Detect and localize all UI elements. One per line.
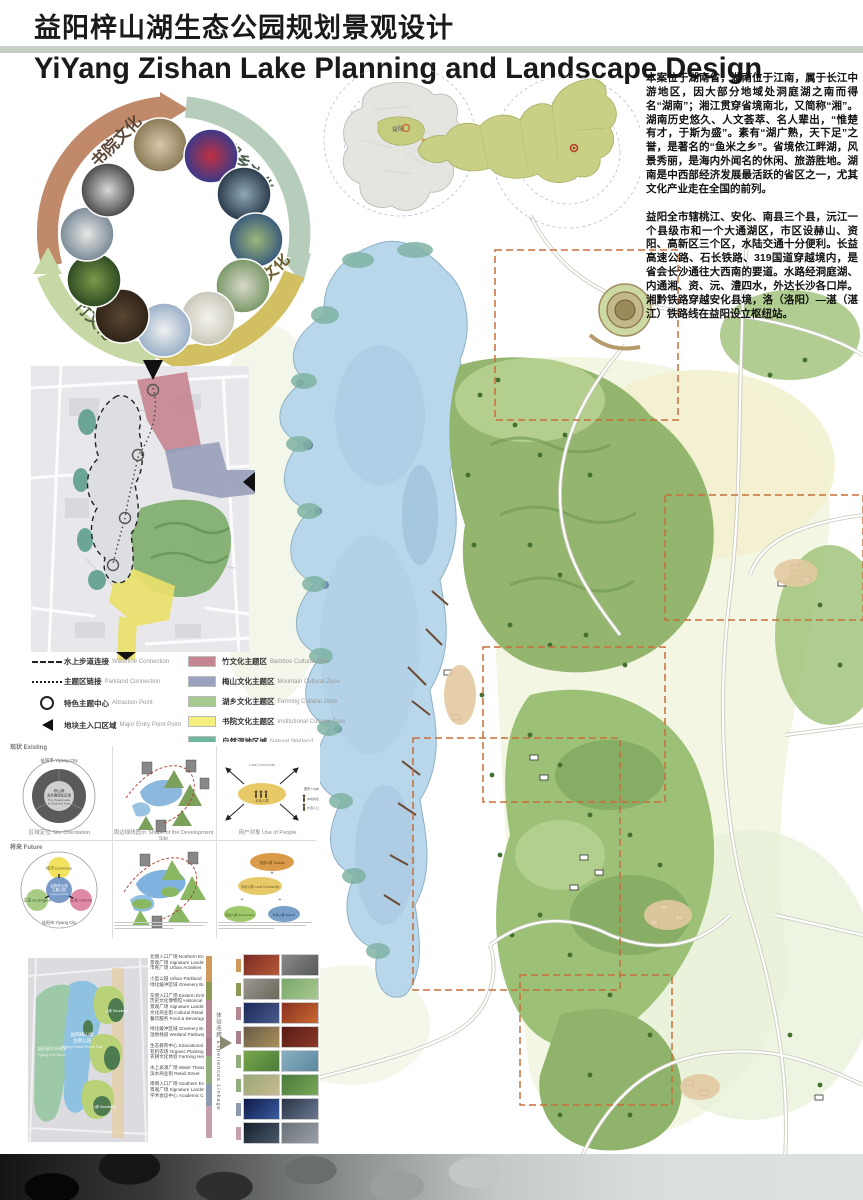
location-maps: 益阳 ★ 长沙 (322, 70, 640, 232)
ref-photo (281, 1002, 319, 1024)
diagram-future-venn: 经济 Economy 生态 Ecological 文化 Culture 益阳梓山… (8, 848, 111, 936)
local-label: 本地人群 Local Community (241, 884, 280, 889)
analysis-panels: 现状 Existing 将来 Future 益阳市 Yiyang City 梓山… (8, 742, 320, 944)
center-label: 及外围绿化区域 (47, 793, 71, 798)
legend-label: 特色主题中心 (64, 698, 109, 709)
outer-label: 益阳市 Yiyang City (40, 757, 78, 764)
legend-label-en: Parkland Connection (105, 679, 161, 685)
programme-list: 北侧入口广场 Northern Entry place 景观广场 Signatu… (150, 954, 204, 1104)
local-community-label: 本地人群 (255, 798, 269, 803)
tourists-label: 旅游人群 Tourists (260, 860, 285, 865)
photo-pagoda (133, 118, 187, 172)
visitors-label: 外来人群 Visitors (273, 912, 296, 917)
legend-item: 本地常住 Local (307, 796, 319, 801)
programme-item: 学术会议中心 Academic Conference Center (150, 1093, 204, 1099)
legend-label: 书院文化主题区 (222, 716, 275, 727)
photo-portrait (81, 163, 135, 217)
photo-water-village (217, 167, 271, 221)
programme-item: 水上表演广场 Water Theatres (150, 1065, 204, 1071)
programme-group-east: 东侧入口广场 Eastern Entry Place 历史文化博物馆 Histo… (150, 993, 204, 1022)
center-label-en: & Greenery Area (48, 802, 71, 806)
programme-group-farming: 生态教育中心 Educational Center 有机农场 Organic P… (150, 1043, 204, 1060)
legend-label-en: Farming Cultural Zone (278, 699, 338, 705)
legend-label-en: Waterline Connection (112, 659, 169, 665)
intro-paragraph-2: 益阳全市辖桃江、安化、南县三个县，沅江一个县级市和一个大通湖区，市区设赫山、资阳… (646, 211, 858, 322)
ref-photo (243, 1074, 281, 1096)
mini-map-park-label: 主题公园 (73, 1037, 92, 1044)
legend-label: 水上步道连接 (64, 656, 109, 667)
reference-photo-grid (236, 954, 320, 1146)
mini-map-park-label: 益阳梓山湖 (71, 1031, 94, 1038)
programme-item: 绿化缓冲区域 Greenery Buffer Zone (150, 982, 204, 988)
culture-ring-diagram: 书院文化 湖乡文化 梅山文化 竹文化 (26, 84, 318, 372)
mountain-zone-swatch (188, 676, 216, 687)
legend-label-en: Mountain Cultural Zone (278, 679, 340, 685)
legend-item-waterline: 水上步道连接 Waterline Connection (30, 656, 180, 667)
ref-photo (243, 1050, 281, 1072)
dashed-line-icon (30, 661, 64, 663)
ref-photo (281, 1074, 319, 1096)
photo-bamboo (67, 253, 121, 307)
programme-item: 滨水商业街 Retail Street (150, 1071, 204, 1077)
legend-zones-column: 竹文化主题区 Bamboo Cultural Zone 梅山文化主题区 Moun… (188, 656, 328, 756)
farming-zone-swatch (188, 696, 216, 707)
zoning-diagram (25, 358, 255, 660)
programme-item: 餐饮服务 Food & Beverage (150, 1016, 204, 1022)
legend-zone-farming: 湖乡文化主题区 Farming Cultural Zone (188, 696, 328, 707)
linkage-label: 体验连廊 Experiences Linkage (214, 1012, 222, 1111)
legend-label-en: Bamboo Cultural Zone (270, 659, 330, 665)
ref-photo (281, 1098, 319, 1120)
legend-markers-column: 水上步道连接 Waterline Connection 主题区链接 Parkla… (30, 656, 180, 740)
ref-photo (243, 1026, 281, 1048)
legend-label: 地块主入口区域 (64, 720, 117, 731)
svg-text:+: + (279, 897, 282, 903)
programme-group-wetland: 绿化缓冲区域 Greenery Buffer Zone 湿地栈道 Wetland… (150, 1026, 204, 1037)
ref-photo (243, 978, 281, 1000)
marker-yiyang-label: 益阳 (392, 125, 404, 133)
legend-item-attraction: 特色主题中心 Attraction Point (30, 696, 180, 710)
legend-label: 梅山文化主题区 (222, 676, 275, 687)
legend-title: 图例 Legend (304, 786, 319, 791)
ref-photo (281, 954, 319, 976)
mini-map-golf-label-en: Yiyang Golf Course (38, 1053, 66, 1057)
programme-item: 市民广场 Urban Activities (150, 965, 204, 971)
ref-photo (243, 1002, 281, 1024)
ref-photo (243, 1098, 281, 1120)
landuse-mini-map: 益阳梓山湖 主题公园 Yiyang Central Theme Park 益阳高… (28, 958, 148, 1142)
caption-use-of-people: 用户对象 Use of People (216, 828, 319, 836)
caption-site-orientation: 区域定位 Site Orientation (8, 828, 111, 836)
programme-item: 农耕文化体验 Farming Heritage (150, 1054, 204, 1060)
poster-page: 益阳梓山湖生态公园规划景观设计 YiYang Zishan Lake Plann… (0, 0, 863, 1200)
mini-map-mountain-label: 山体 Mountains (92, 1104, 116, 1109)
programme-item: 文化商业街 Cultural Retail Street (150, 1010, 204, 1016)
legend-label-en: Major Entry Point Point (120, 722, 181, 728)
mini-map-park-label-en: Yiyang Central Theme Park (61, 1045, 103, 1049)
mini-map-mountain-label: 山体 Mountains (105, 1008, 129, 1013)
spiral-garden-feature (590, 284, 651, 349)
diagram-use-of-people: 本地人群 Local Community 图例 Legend 本地常住 Loca… (216, 750, 319, 838)
dotted-line-icon (30, 681, 64, 683)
outer-city-label: 益阳市 Yiyang City (42, 919, 78, 926)
programme-group-parkland: 小型公园 Urban Parkland 绿化缓冲区域 Greenery Buff… (150, 976, 204, 987)
center-label: 梓山湖 (54, 788, 65, 793)
legend-label: 湖乡文化主题区 (222, 696, 275, 707)
bamboo-zone-swatch (188, 656, 216, 667)
arrow-icon (30, 719, 64, 731)
legend-label: 主题区链接 (64, 676, 102, 687)
ref-photo (281, 1122, 319, 1144)
programme-group-north: 北侧入口广场 Northern Entry place 景观广场 Signatu… (150, 954, 204, 971)
legend-zone-institutional: 书院文化主题区 Institutional Cultural Zone (188, 716, 328, 727)
programme-item: 北侧入口广场 Northern Entry place (150, 954, 204, 960)
ref-photo (281, 978, 319, 1000)
ref-photo (243, 954, 281, 976)
intro-paragraph-1: 本案位于湖南省，湖南位于江南，属于长江中游地区，因大部分地域处洞庭湖之南而得名“… (646, 72, 858, 197)
legend-label-en: Attraction Point (112, 700, 153, 706)
programme-group-water: 水上表演广场 Water Theatres 滨水商业街 Retail Stree… (150, 1065, 204, 1076)
programme-item: 生态教育中心 Educational Center (150, 1043, 204, 1049)
ref-photo (281, 1050, 319, 1072)
local-community-label-en: Local Community (249, 763, 275, 767)
economy-label: 经济 Economy (46, 865, 72, 871)
experience-linkage-block: 益阳梓山湖 主题公园 Yiyang Central Theme Park 益阳高… (28, 952, 320, 1148)
svg-text:+: + (241, 897, 244, 903)
theme-park-label-en: Yiyang Central (50, 892, 69, 896)
programme-group-south: 南侧入口广场 Southern Entry Place 景观广场 Signatu… (150, 1081, 204, 1098)
diagram-development-site (112, 750, 215, 838)
culture-label: 文化 Culture (70, 897, 93, 903)
circle-icon (30, 696, 64, 710)
legend-item-entry: 地块主入口区域 Major Entry Point Point (30, 719, 180, 731)
page-title-chinese: 益阳梓山湖生态公园规划景观设计 (34, 6, 454, 45)
legend-zone-bamboo: 竹文化主题区 Bamboo Cultural Zone (188, 656, 328, 667)
linkage-color-bar (206, 956, 212, 1138)
svg-text:+: + (270, 871, 274, 877)
legend-label: 竹文化主题区 (222, 656, 267, 667)
surrounding-label: 周边人群 Surrounding (225, 912, 255, 917)
mini-map-golf-label: 益阳高尔夫球场 (37, 1045, 66, 1052)
legend-item: 外围人口 Outside (307, 805, 319, 810)
intro-text-block: 本案位于湖南省，湖南位于江南，属于长江中游地区，因大部分地域处洞庭湖之南而得名“… (646, 72, 858, 336)
ref-photo (243, 1122, 281, 1144)
legend-zone-mountain: 梅山文化主题区 Mountain Cultural Zone (188, 676, 328, 687)
ref-photo (281, 1026, 319, 1048)
flow-arrow-icon (220, 1036, 232, 1050)
caption-development-site: 周边绿线图示 Shape of the Development Site (112, 828, 215, 842)
legend-item-parkland: 主题区链接 Parkland Connection (30, 676, 180, 687)
institutional-zone-swatch (188, 716, 216, 727)
pebble-photo-strip (0, 1154, 863, 1200)
programme-item: 湿地栈道 Wetland Pathway (150, 1032, 204, 1038)
legend-label-en: Institutional Cultural Zone (278, 719, 346, 725)
diagram-site-orientation: 益阳市 Yiyang City 梓山湖 及外围绿化区域 The Yiyang L… (8, 750, 111, 838)
